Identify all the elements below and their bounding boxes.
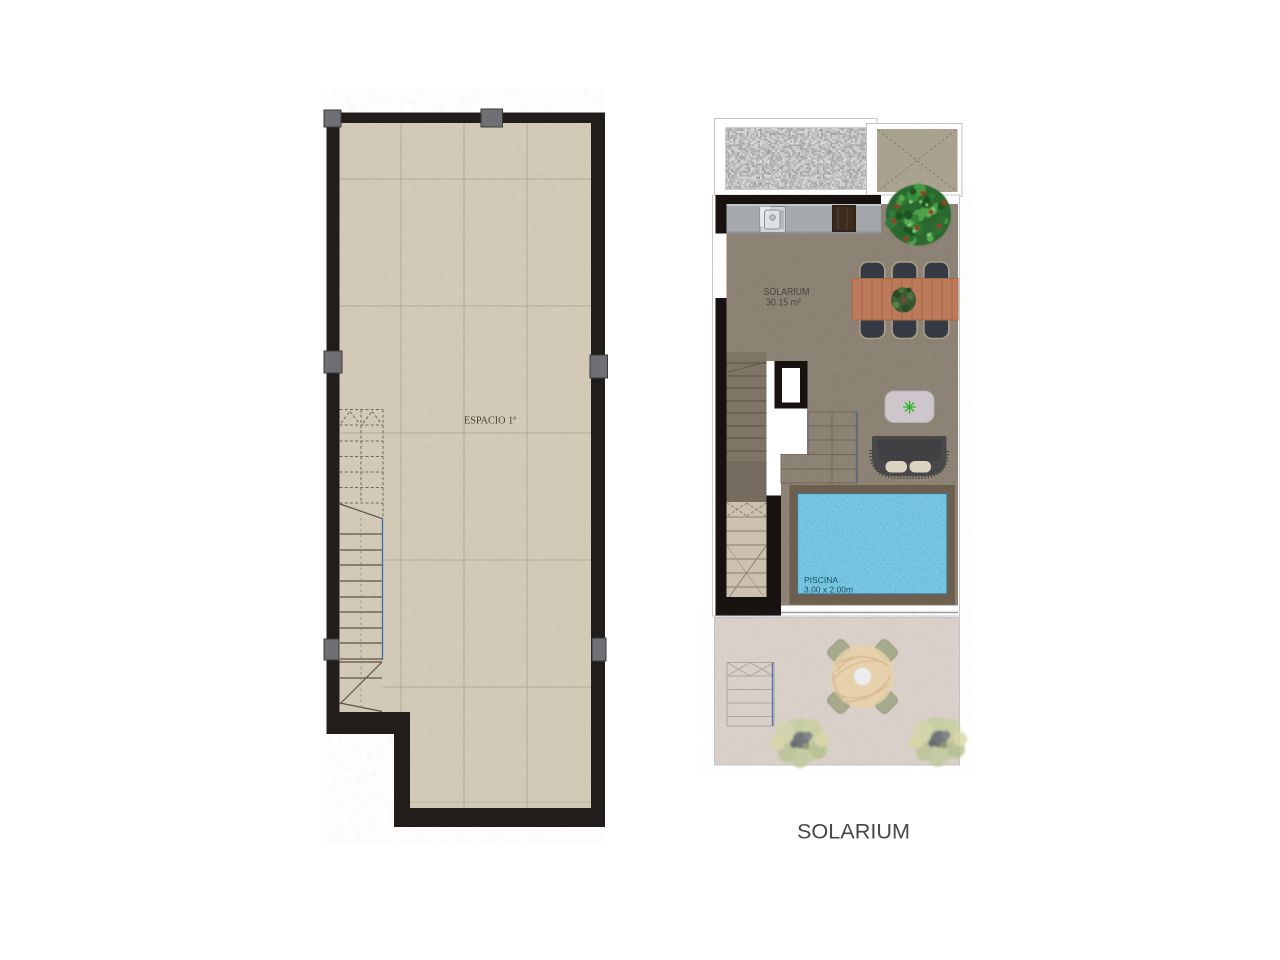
svg-text:PISCINA: PISCINA: [804, 575, 838, 585]
svg-text:SOLARIUM: SOLARIUM: [764, 286, 810, 298]
svg-text:SOLARIUM: SOLARIUM: [797, 821, 910, 844]
svg-text:30.15 m²: 30.15 m²: [766, 298, 802, 309]
svg-text:ESPACIO 1ª: ESPACIO 1ª: [464, 415, 517, 427]
svg-text:3.00 x 2.00m: 3.00 x 2.00m: [804, 585, 853, 595]
